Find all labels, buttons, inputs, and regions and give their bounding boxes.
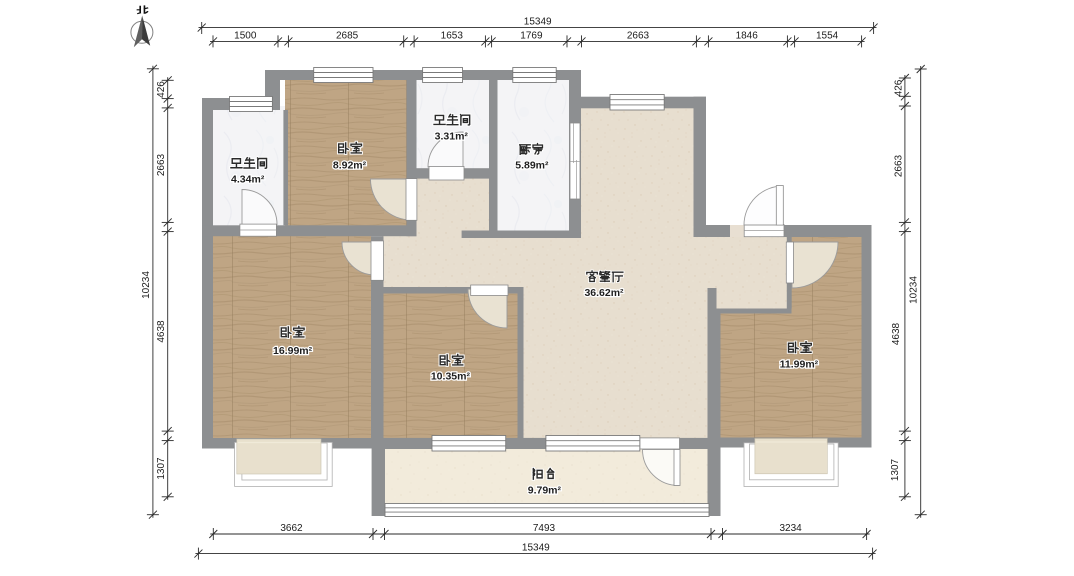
svg-text:1846: 1846 (736, 31, 759, 42)
svg-text:1769: 1769 (520, 31, 543, 42)
svg-text:10234: 10234 (909, 276, 920, 304)
svg-text:2663: 2663 (627, 31, 650, 42)
svg-text:426: 426 (156, 81, 167, 98)
svg-text:7493: 7493 (533, 523, 556, 534)
svg-text:9.79m²: 9.79m² (528, 484, 562, 496)
svg-text:4.34m²: 4.34m² (231, 174, 265, 186)
svg-text:10234: 10234 (141, 271, 152, 299)
svg-text:15349: 15349 (522, 543, 550, 554)
svg-text:1307: 1307 (156, 457, 167, 480)
svg-text:426: 426 (894, 79, 905, 96)
svg-text:4638: 4638 (156, 320, 167, 343)
svg-text:2685: 2685 (336, 31, 359, 42)
svg-text:1653: 1653 (441, 31, 464, 42)
svg-text:36.62m²: 36.62m² (584, 287, 624, 299)
svg-text:15349: 15349 (524, 17, 552, 28)
svg-text:10.35m²: 10.35m² (431, 371, 471, 383)
svg-text:11.99m²: 11.99m² (780, 359, 819, 371)
svg-text:3662: 3662 (280, 523, 303, 534)
svg-text:4638: 4638 (891, 322, 902, 345)
svg-text:16.99m²: 16.99m² (273, 345, 313, 357)
svg-text:3.31m²: 3.31m² (435, 130, 469, 142)
svg-text:2663: 2663 (894, 154, 905, 177)
svg-text:2663: 2663 (156, 153, 167, 176)
svg-text:1500: 1500 (234, 31, 257, 42)
svg-text:1307: 1307 (890, 458, 901, 481)
svg-text:5.89m²: 5.89m² (515, 160, 549, 172)
svg-text:3234: 3234 (779, 523, 802, 534)
svg-text:8.92m²: 8.92m² (333, 160, 367, 172)
svg-text:1554: 1554 (816, 31, 839, 42)
